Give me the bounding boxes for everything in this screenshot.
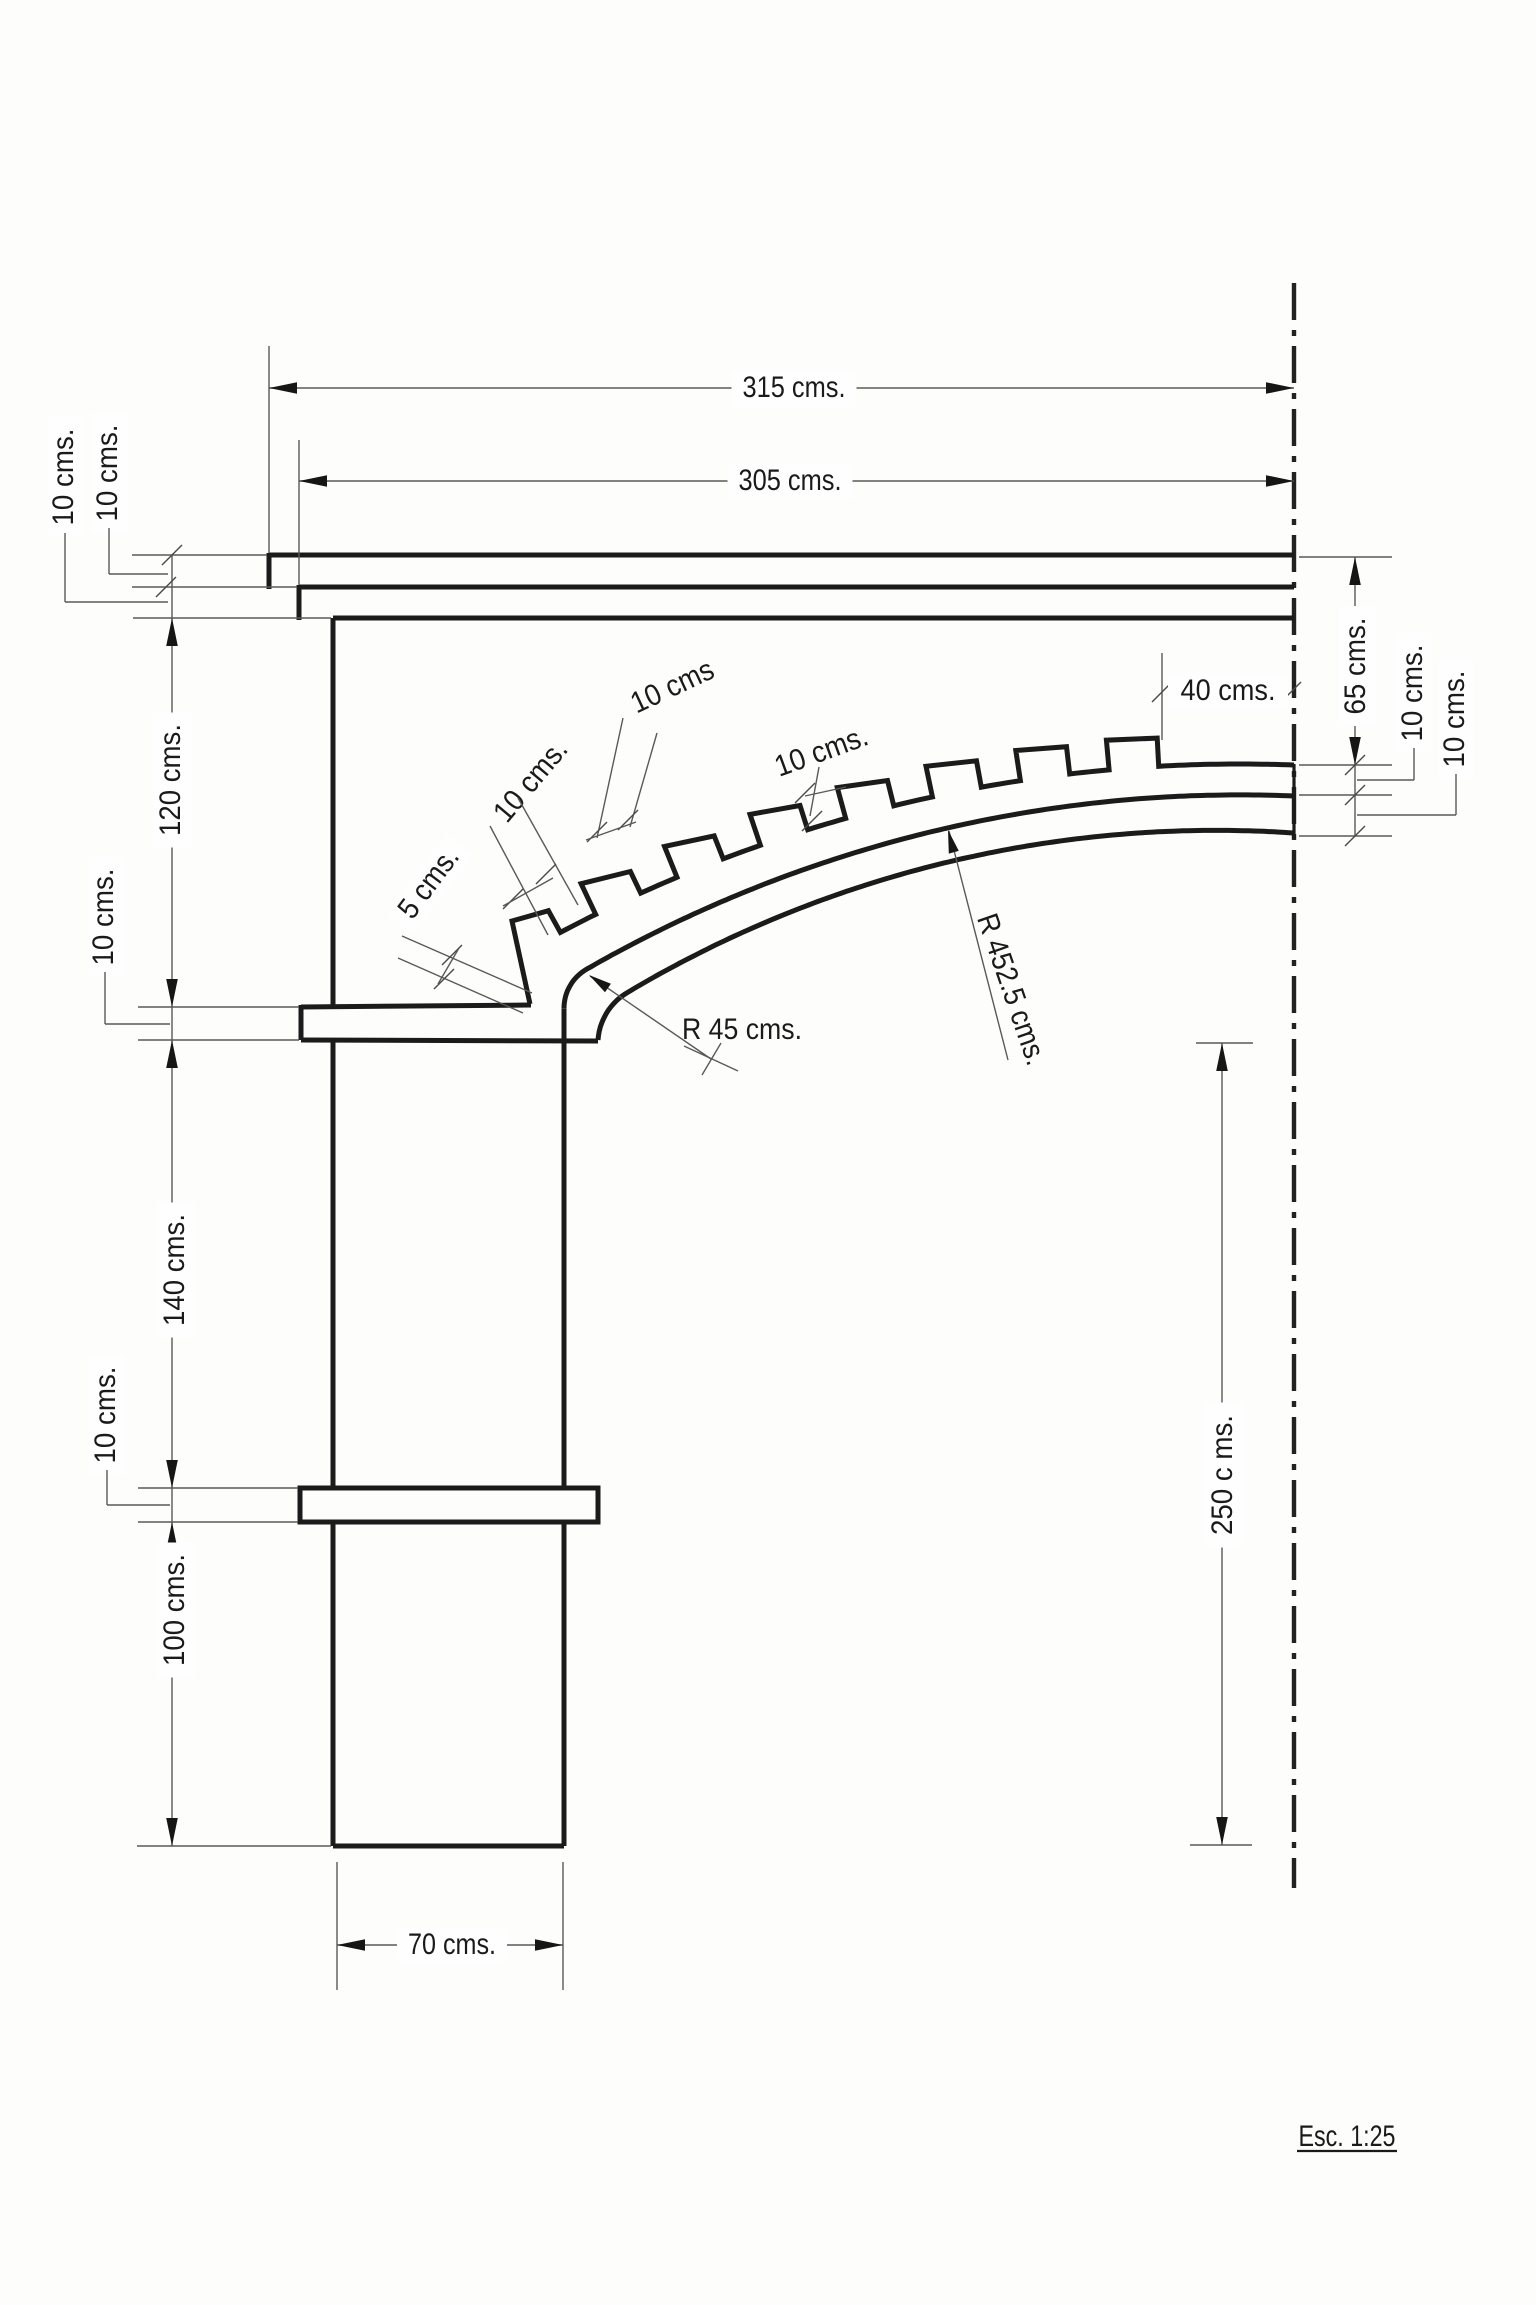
svg-text:10 cms.: 10 cms. (87, 869, 120, 966)
svg-text:10 cms.: 10 cms. (91, 425, 124, 522)
svg-text:70 cms.: 70 cms. (408, 1928, 496, 1961)
svg-text:100 cms.: 100 cms. (158, 1554, 191, 1666)
svg-text:65 cms.: 65 cms. (1339, 618, 1372, 715)
svg-text:10 cms.: 10 cms. (1396, 645, 1429, 742)
svg-text:40 cms.: 40 cms. (1181, 674, 1276, 707)
svg-text:10 cms.: 10 cms. (47, 429, 80, 526)
svg-text:120 cms.: 120 cms. (154, 724, 187, 836)
svg-text:140 cms.: 140 cms. (158, 1214, 191, 1326)
svg-text:R 45 cms.: R 45 cms. (682, 1013, 802, 1046)
svg-text:250 c ms.: 250 c ms. (1206, 1415, 1239, 1535)
svg-text:10 cms.: 10 cms. (89, 1367, 122, 1464)
svg-text:10 cms.: 10 cms. (1438, 671, 1471, 768)
svg-text:Esc. 1:25: Esc. 1:25 (1299, 2120, 1396, 2153)
svg-text:315 cms.: 315 cms. (743, 371, 846, 404)
svg-text:305 cms.: 305 cms. (739, 464, 842, 497)
